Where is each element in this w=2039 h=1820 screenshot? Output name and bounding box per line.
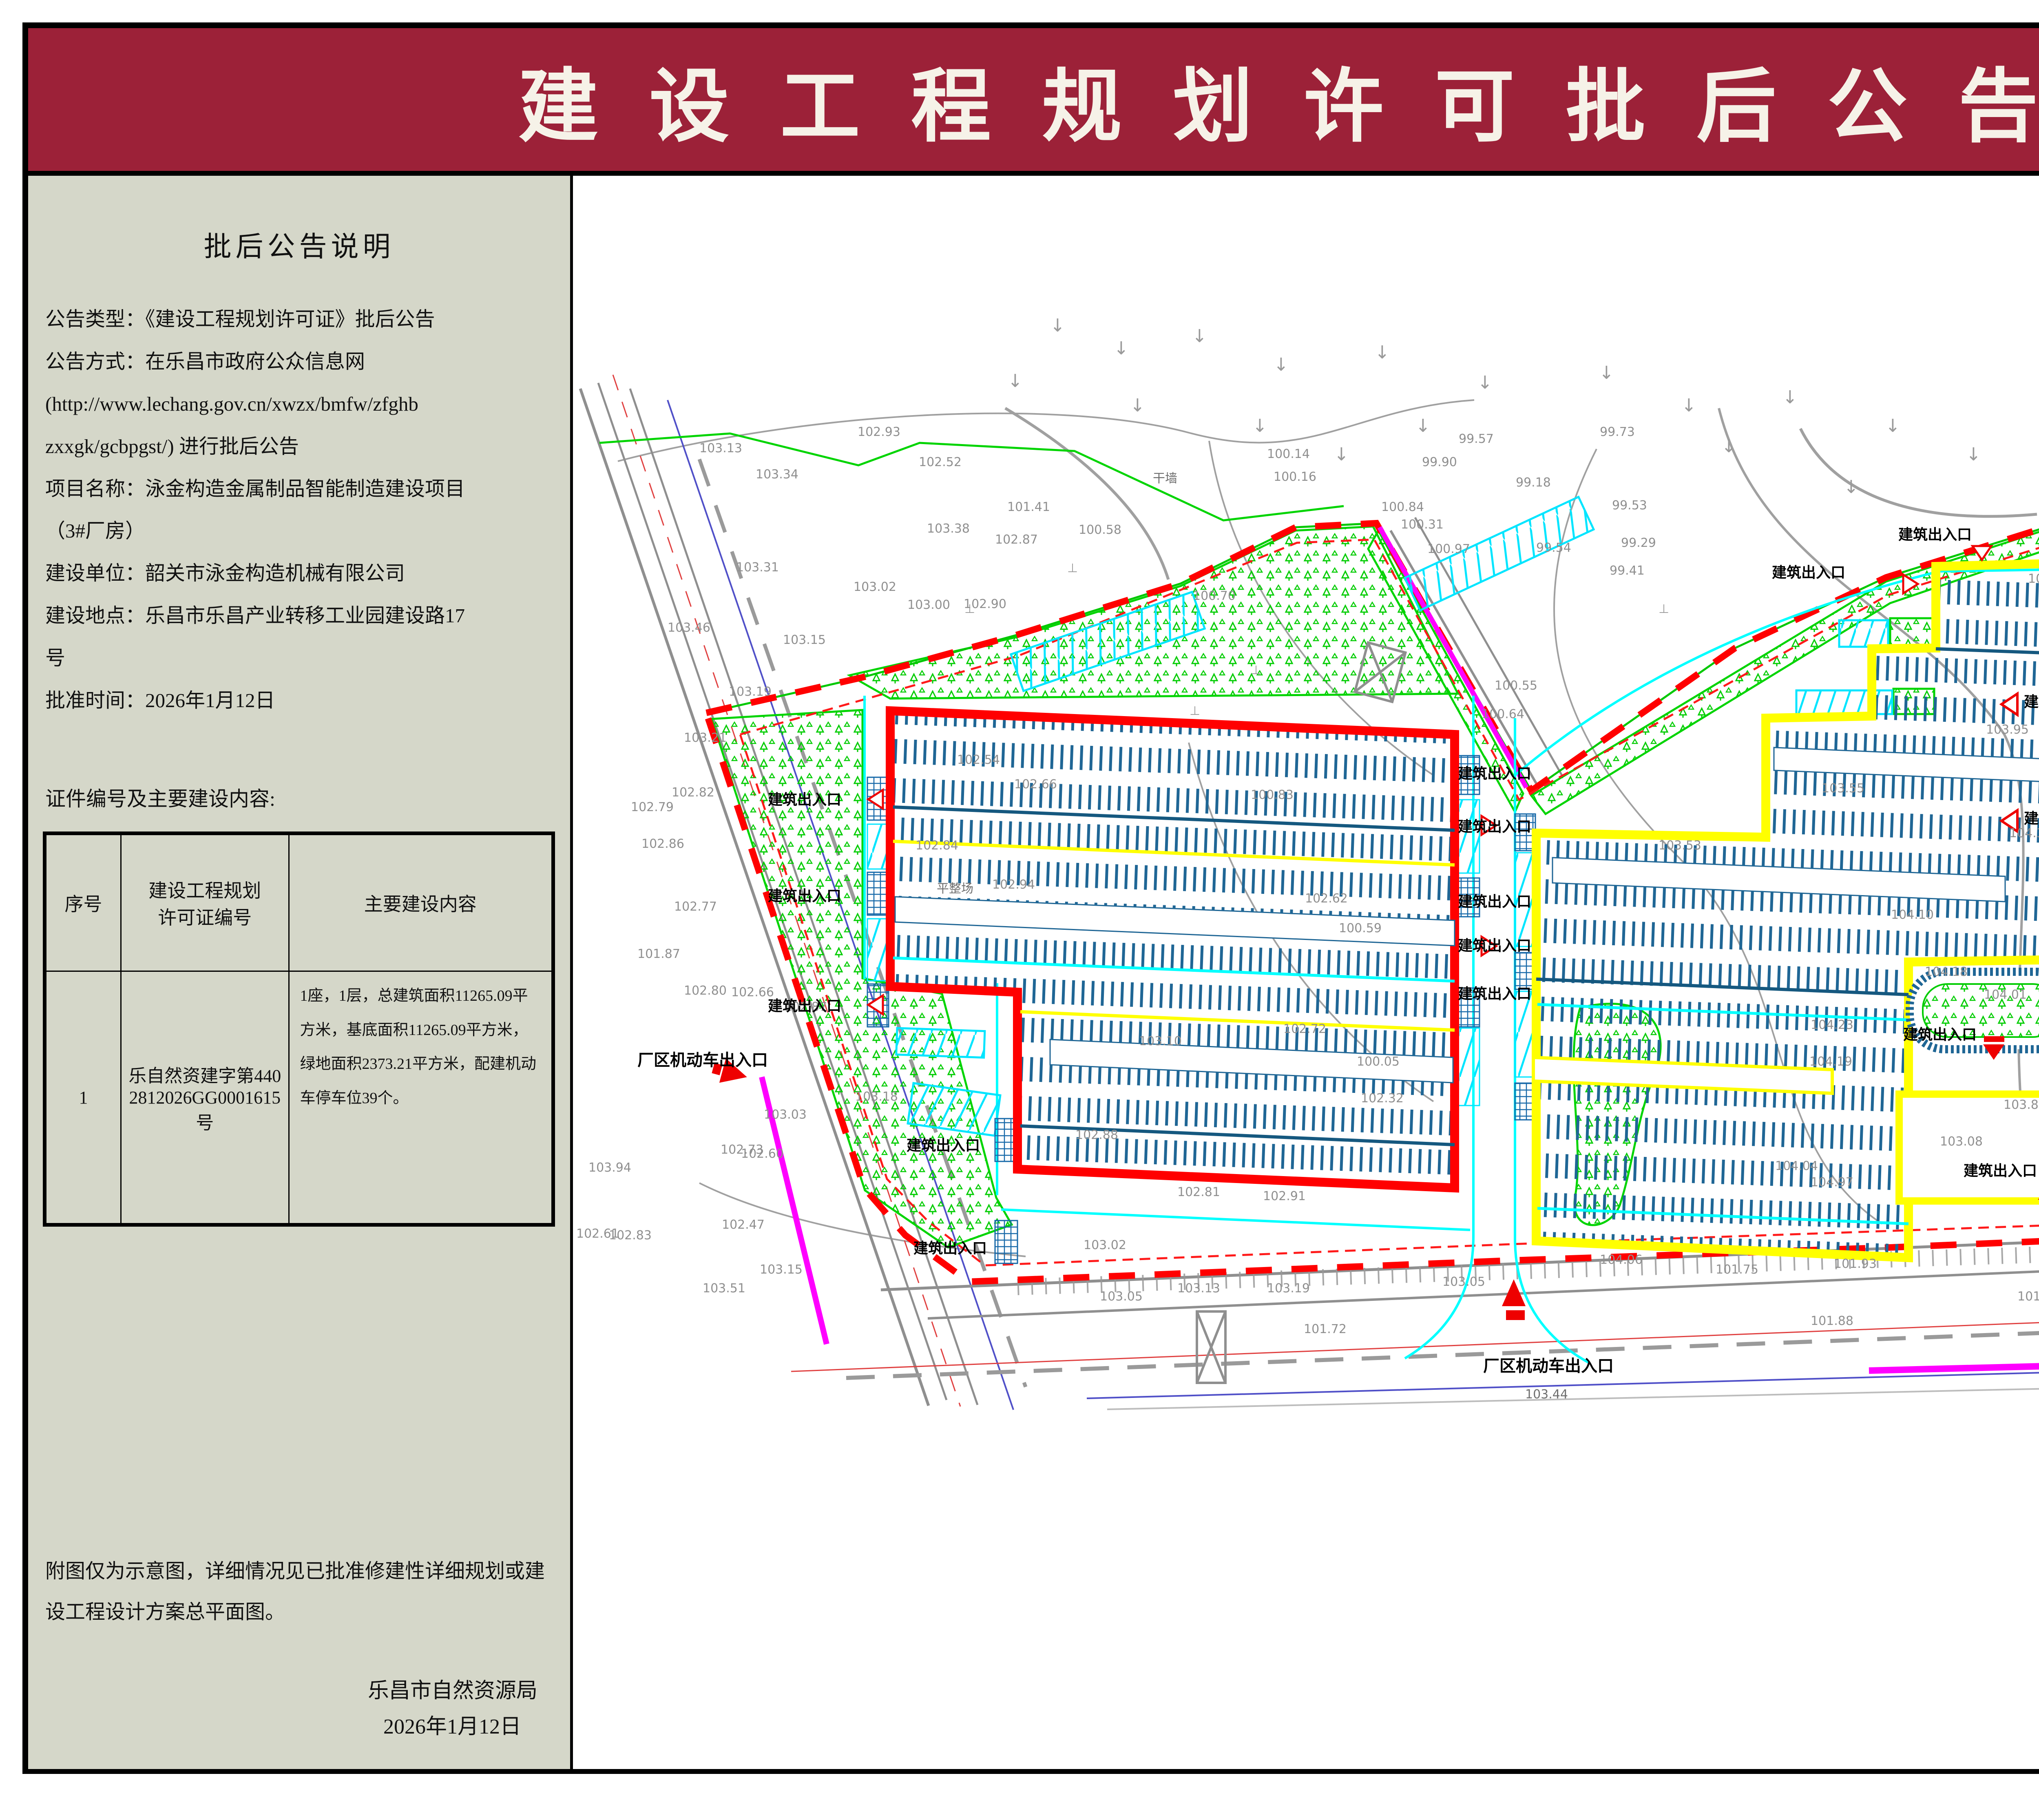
map-label: 建筑出入口 (1458, 818, 1531, 835)
map-label: 建筑出入口 (907, 1137, 980, 1154)
signature-date: 2026年1月12日 (383, 1709, 521, 1740)
map-label: 建筑出入口 (1458, 893, 1531, 910)
cell-permit-no: 乐自然资建字第4402812026GG0001615号 (121, 971, 289, 1225)
map-label: 103.19 (729, 685, 772, 699)
poster-border: 建 设 工 程 规 划 许 可 批 后 公 告 批后公告说明 公告类型：《建设工… (22, 22, 2039, 1774)
map-label: 建筑出入口 (913, 1240, 987, 1256)
map-label: 102.82 (672, 785, 714, 800)
map-label: 建筑出入口 (768, 792, 841, 808)
map-label: 103.15 (760, 1263, 803, 1277)
map-label: 100.83 (1251, 788, 1294, 802)
map-label: 103.13 (1177, 1281, 1220, 1296)
map-label: 103.15 (783, 633, 826, 647)
map-label: 100.84 (1381, 500, 1424, 514)
col-header-permit: 建设工程规划 许可证编号 (121, 834, 289, 971)
map-label: ↓ (1966, 444, 1981, 465)
map-label: 101.87 (637, 947, 680, 961)
map-label: 102.93 (858, 425, 900, 439)
map-label: 102.32 (1361, 1091, 1404, 1106)
map-label: 103.19 (1267, 1281, 1310, 1296)
map-label: 104.97 (1811, 1175, 1853, 1190)
map-label: 102.52 (919, 455, 962, 469)
map-label: 102.79 (631, 800, 674, 814)
sidebar-note: 附图仅为示意图，详细情况见已批准修建性详细规划或建设工程设计方案总平面图。 (45, 1551, 555, 1633)
sidebar-title: 批后公告说明 (28, 224, 570, 264)
cell-content: 1座，1层，总建筑面积11265.09平方米，基底面积11265.09平方米，绿… (289, 971, 553, 1225)
map-label: 104.32 (2009, 826, 2039, 840)
map-label: 99.18 (1516, 475, 1551, 490)
map-label: 102.84 (916, 838, 958, 853)
map-label: 建筑出入口 (2024, 810, 2039, 827)
map-label: 104.23 (1811, 1018, 1853, 1032)
map-label: 104.10 (1891, 908, 1934, 922)
map-label: 100.70 (1193, 589, 1236, 603)
map-label: ↓ (1477, 372, 1493, 393)
map-label: ↓ (1130, 395, 1145, 416)
map-label: 99.57 (1459, 432, 1494, 446)
map-label: ↓ (1050, 315, 1065, 336)
map-label: ⊥ (964, 602, 975, 616)
map-label: 99.54 (1536, 541, 1571, 555)
map-label: ↓ (1192, 326, 1207, 347)
map-label: 104.04 (1775, 1159, 1818, 1173)
page-title: 建 设 工 程 规 划 许 可 批 后 公 告 (518, 42, 2039, 157)
map-label: 建筑出入口 (1458, 765, 1531, 782)
map-label: 建筑出入口 (1903, 1026, 1977, 1043)
header-banner: 建 设 工 程 规 划 许 可 批 后 公 告 (28, 28, 2039, 176)
map-label: 104.06 (1600, 1253, 1643, 1267)
map-label: 100.58 (1079, 523, 1121, 537)
map-label: 102.88 (1075, 1128, 1118, 1142)
map-label: 103.02 (1084, 1238, 1126, 1252)
map-label: 103.00 (907, 598, 950, 612)
map-label: ↓ (1008, 371, 1023, 391)
map-label: ↓ (1844, 477, 1859, 498)
map-label: ⊥ (1251, 663, 1261, 677)
map-label: 103.05 (1442, 1275, 1485, 1289)
map-label: 建筑出入口 (768, 888, 841, 904)
map-label: 103.85 (2004, 1098, 2039, 1112)
map-label: 103.53 (1659, 838, 1701, 853)
map-label: 102.61 (576, 1227, 619, 1241)
map-label: ↓ (1375, 342, 1390, 363)
map-label: 102.47 (722, 1218, 765, 1232)
map-label: 101.75 (1716, 1263, 1758, 1277)
map-label: 102.73 (721, 1143, 763, 1157)
map-label: 厂区机动车出入口 (1483, 1357, 1614, 1375)
map-label: 103.05 (1100, 1289, 1143, 1304)
map-label: 102.81 (1177, 1185, 1220, 1199)
col-header-no: 序号 (45, 834, 121, 971)
announcement-paragraph: 公告类型：《建设工程规划许可证》批后公告 公告方式：在乐昌市政府公众信息网 (h… (45, 298, 555, 722)
map-label: 101.88 (1811, 1314, 1853, 1328)
map-label: 建筑出入口 (1458, 938, 1531, 954)
map-label: 103.02 (854, 580, 896, 594)
map-label: 建筑出入口 (1458, 986, 1531, 1002)
map-label: 建筑出入口 (1898, 526, 1972, 543)
map-label: ↓ (1252, 416, 1267, 436)
map-label: 103.13 (699, 441, 742, 456)
map-label: 102.87 (995, 533, 1038, 547)
map-label: 104.01 (1984, 988, 2027, 1002)
map-label: 103.18 (855, 1090, 898, 1104)
map-label: 建筑出入口 (2024, 694, 2039, 710)
map-label: 101.72 (1304, 1322, 1347, 1336)
map-label: 建筑出入口 (768, 998, 841, 1014)
map-label: 102.62 (1305, 891, 1348, 906)
map-label: 103.38 (927, 522, 970, 536)
map-label: 厂区机动车出入口 (637, 1051, 768, 1069)
map-label: 100.16 (1274, 470, 1316, 484)
map-label: 100.64 (1482, 707, 1524, 721)
map-label: 建筑出入口 (1964, 1163, 2037, 1179)
map-label: 103.94 (588, 1161, 631, 1175)
sidebar-panel: 批后公告说明 公告类型：《建设工程规划许可证》批后公告 公告方式：在乐昌市政府公… (28, 176, 573, 1769)
map-label: ↓ (1415, 416, 1431, 436)
map-label: 103.34 (756, 467, 798, 482)
map-label: 102.86 (641, 837, 684, 851)
map-label: 99.29 (1621, 536, 1656, 550)
map-label: 103.44 (1525, 1387, 1568, 1402)
map-label: 102.72 (1283, 1022, 1326, 1036)
map-label: 103.21 (684, 731, 727, 745)
map-label: ↓ (1334, 444, 1349, 465)
map-label: ↓ (1721, 436, 1736, 457)
map-label: 100.97 (1427, 542, 1470, 556)
map-label: 101.93 (1834, 1257, 1877, 1271)
map-label: 103.03 (764, 1108, 807, 1122)
map-label: ↓ (1681, 395, 1696, 416)
map-label: ⊥ (1190, 704, 1200, 718)
map-label: 101.73 (2017, 1289, 2039, 1304)
map-label: 102.77 (674, 900, 717, 914)
map-label: 干墙 (1153, 471, 1177, 486)
map-label: ⊥ (1659, 602, 1669, 616)
map-label: 99.53 (1612, 498, 1647, 513)
col-header-content: 主要建设内容 (289, 834, 553, 971)
map-label: ↓ (1114, 338, 1129, 359)
table-row: 1 乐自然资建字第4402812026GG0001615号 1座，1层，总建筑面… (45, 971, 553, 1225)
map-label: 103.46 (668, 621, 710, 635)
map-label: 100.55 (1495, 679, 1537, 693)
map-label: 100.14 (1267, 447, 1310, 461)
page: 建 设 工 程 规 划 许 可 批 后 公 告 批后公告说明 公告类型：《建设工… (0, 0, 2039, 1820)
map-label: 103.55 (1822, 781, 1864, 796)
map-label: 103.95 (1986, 723, 2029, 737)
map-label: 102.91 (1263, 1189, 1306, 1203)
map-label: ↓ (1599, 363, 1614, 383)
map-label: 104.19 (1809, 1055, 1852, 1069)
map-label: 100.31 (1401, 517, 1444, 532)
map-label: 103.31 (736, 560, 779, 575)
site-plan-area: 103.13103.34103.38102.87103.31103.02103.… (573, 176, 2039, 1769)
map-label: 99.73 (1600, 425, 1635, 439)
map-label: ↓ (1782, 387, 1798, 408)
site-plan-svg: 103.13103.34103.38102.87103.31103.02103.… (573, 176, 2039, 1769)
map-label: 103.51 (703, 1281, 745, 1296)
map-label: 103.43 (2028, 572, 2039, 586)
map-label: 100.59 (1339, 921, 1382, 935)
map-label: 102.66 (1014, 777, 1057, 792)
map-label: ⊥ (1067, 561, 1078, 575)
signature: 乐昌市自然资源局 (368, 1673, 537, 1704)
map-label: 100.05 (1357, 1055, 1400, 1069)
map-label: ↓ (1274, 354, 1289, 375)
map-label: 103.10 (1139, 1034, 1182, 1048)
map-label: 99.90 (1422, 455, 1457, 469)
map-label: 102.66 (731, 985, 774, 1000)
map-label: ↓ (1885, 416, 1900, 436)
map-label: 102.94 (992, 878, 1035, 892)
map-label: 102.54 (957, 753, 1000, 767)
map-label: 104.18 (1925, 965, 1968, 979)
map-label: 103.08 (1940, 1134, 1983, 1149)
map-label: 101.41 (1007, 500, 1050, 514)
table-caption: 证件编号及主要建设内容: (45, 783, 275, 812)
table-header-row: 序号 建设工程规划 许可证编号 主要建设内容 (45, 834, 553, 971)
permit-table: 序号 建设工程规划 许可证编号 主要建设内容 1 乐自然资建字第44028120… (43, 831, 555, 1227)
map-label: 建筑出入口 (1772, 564, 1845, 581)
cell-no: 1 (45, 971, 121, 1225)
map-label: 平整场 (937, 882, 973, 896)
map-label: 102.80 (684, 984, 727, 998)
map-label: 99.41 (1610, 564, 1645, 578)
